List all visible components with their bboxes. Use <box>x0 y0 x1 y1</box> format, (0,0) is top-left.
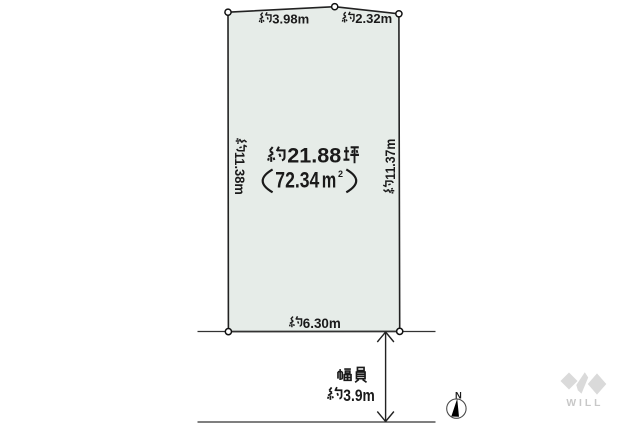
svg-text:6.30m: 6.30m <box>303 316 341 331</box>
svg-text:3.9m: 3.9m <box>343 387 375 405</box>
svg-text:3.98m: 3.98m <box>272 12 309 27</box>
svg-text:11.38m: 11.38m <box>232 152 247 195</box>
svg-text:2: 2 <box>338 169 343 179</box>
svg-text:2.32m: 2.32m <box>355 11 392 26</box>
svg-text:WILL: WILL <box>566 398 603 409</box>
svg-text:11.37m: 11.37m <box>383 139 398 180</box>
svg-text:m: m <box>322 168 337 193</box>
svg-text:21.88: 21.88 <box>287 144 341 168</box>
svg-text:72.34: 72.34 <box>275 168 320 193</box>
